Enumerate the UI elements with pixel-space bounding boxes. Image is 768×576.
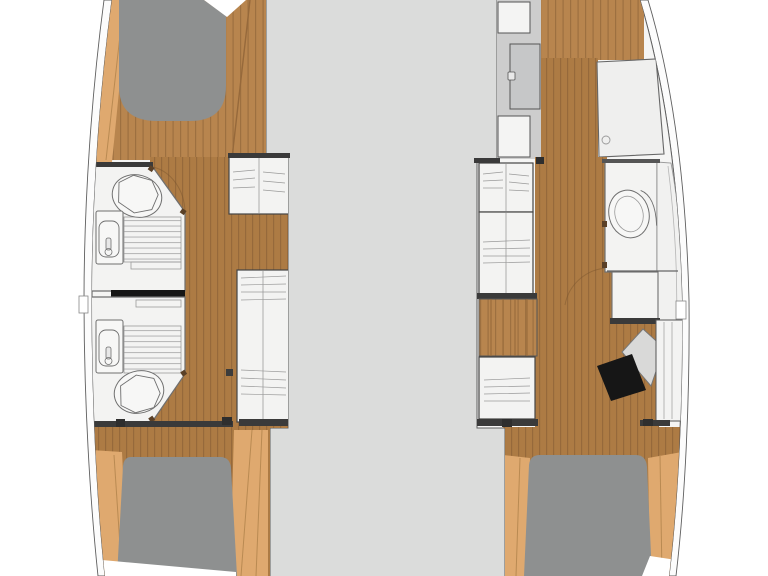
stbd-bow-floor [540, 0, 644, 60]
stbd-vanity [610, 272, 660, 324]
stbd-hull-fitting [676, 301, 686, 319]
port-forward-shower [124, 217, 181, 262]
starboard-hull [474, 0, 689, 576]
floorplan-canvas [0, 0, 768, 576]
port-corridor-post [226, 369, 233, 376]
port-aft-berth [117, 457, 237, 576]
port-deck-junction-bar [228, 153, 290, 158]
stbd-wardrobe [477, 212, 537, 299]
catamaran-floorplan [0, 0, 768, 576]
port-forward-berth [119, 0, 226, 121]
port-hull-fitting [79, 296, 88, 313]
stbd-deck-junction-bar [474, 158, 500, 163]
stbd-forward-corridor [540, 58, 598, 158]
port-bathroom-divider [111, 290, 185, 297]
bridge-deck [266, 0, 506, 576]
port-door-post-left [116, 419, 125, 427]
stbd-forward-lockers [497, 0, 541, 159]
stbd-cabinet-aft [476, 357, 538, 426]
port-hull [79, 0, 290, 576]
port-forward-sink [96, 211, 123, 264]
port-aft-sink [96, 320, 123, 373]
stbd-door-post-left [502, 419, 512, 427]
stbd-corridor-floor [535, 157, 607, 431]
stbd-cabinet-forward [479, 163, 533, 212]
stbd-corridor-post [536, 157, 544, 164]
stbd-companionway-steps [479, 299, 537, 356]
port-wardrobe-aft [237, 270, 289, 426]
stbd-aft-berth [524, 455, 652, 576]
port-door-post-right [222, 417, 232, 425]
port-cabinet-forward [229, 157, 289, 214]
port-aft-shower [124, 326, 181, 373]
stbd-door-post-right [643, 419, 653, 426]
stbd-door-handle [508, 72, 515, 80]
port-aft-bulkhead [89, 421, 233, 427]
